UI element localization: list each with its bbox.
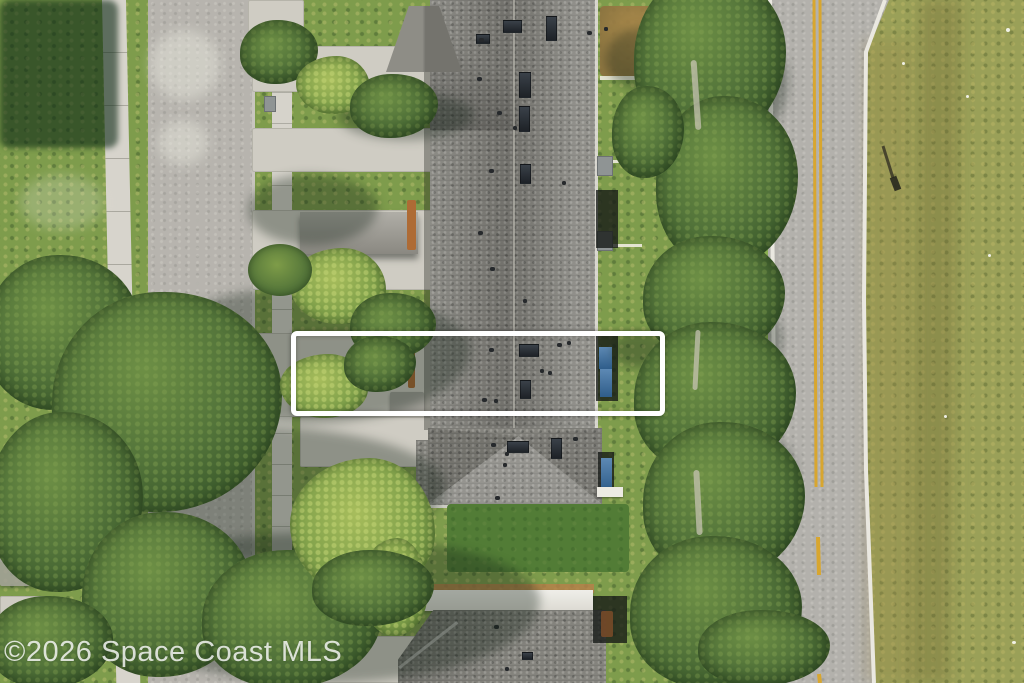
tree-canopy — [698, 610, 830, 683]
shrub — [248, 244, 312, 296]
tree-shadow-on-lawn — [0, 0, 118, 148]
tree-shadow — [248, 175, 378, 245]
aerial-photo-scene: ©2026 Space Coast MLS — [0, 0, 1024, 683]
watermark: ©2026 Space Coast MLS — [4, 636, 342, 669]
property-highlight-box — [291, 331, 665, 416]
